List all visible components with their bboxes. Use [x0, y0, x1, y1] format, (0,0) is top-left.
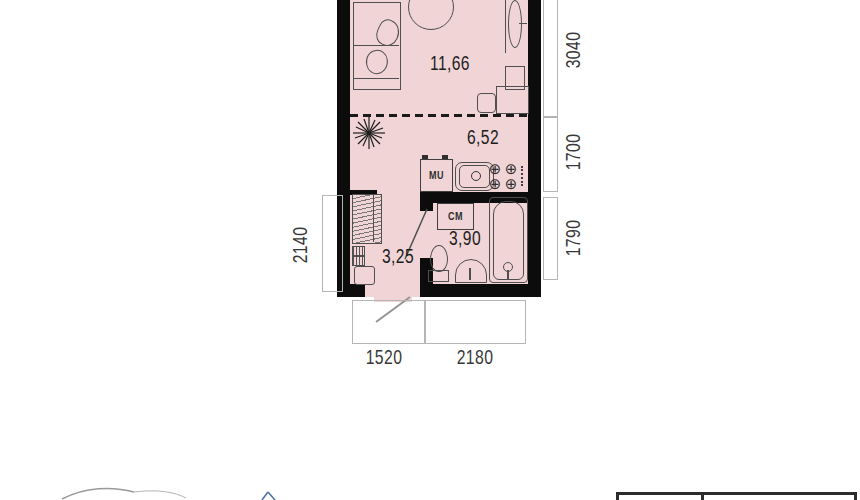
- dim-label-2140: 2140: [288, 227, 312, 264]
- dim-bracket-2180: [424, 300, 526, 344]
- kitchen-area-label: 6,52: [467, 126, 499, 149]
- living-room-area-label: 11,66: [430, 52, 470, 75]
- hallway-area-label: 3,25: [382, 245, 414, 268]
- table-column-border: [854, 492, 857, 500]
- plant-icon: [353, 117, 385, 149]
- dim-label-1520: 1520: [366, 345, 403, 369]
- compass-fragment: [262, 492, 275, 500]
- dim-bracket-1700: [543, 116, 558, 192]
- table-top-border: [616, 492, 857, 495]
- plan-overlay-graphics: [0, 0, 860, 500]
- table-column-border: [616, 492, 619, 500]
- dim-label-3040: 3040: [561, 32, 585, 69]
- dim-label-1790: 1790: [561, 220, 585, 257]
- site-plan-fragment: [62, 488, 134, 499]
- dim-bracket-left: [322, 195, 343, 292]
- bathroom-area-label: 3,90: [449, 227, 481, 250]
- dim-bracket-1520: [352, 300, 426, 344]
- table-column-border: [701, 492, 704, 500]
- dim-label-1700: 1700: [561, 134, 585, 171]
- dim-bracket-3040: [543, 0, 558, 118]
- dim-label-2180: 2180: [457, 345, 494, 369]
- floor-plan: МU ⊕ ⊕ ⊕ ⊕ СМ: [0, 0, 860, 500]
- dim-bracket-1790: [543, 197, 558, 280]
- site-plan-fragment: [134, 491, 186, 498]
